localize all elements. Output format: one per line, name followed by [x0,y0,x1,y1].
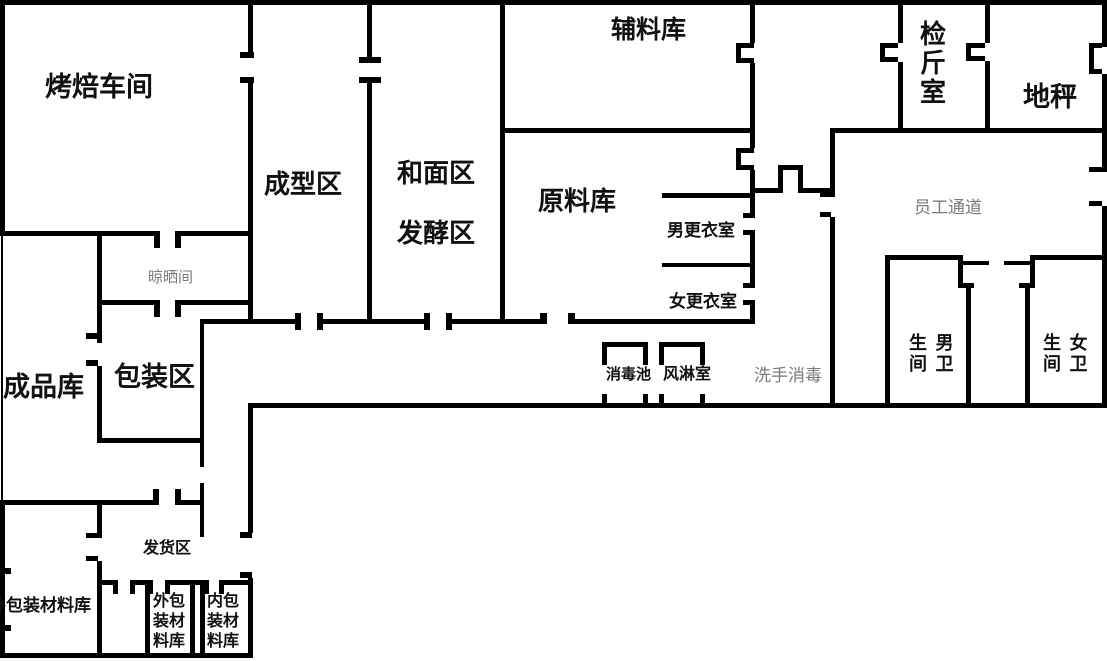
wall-segment [575,319,755,324]
wall-segment [803,188,832,193]
wall-segment [659,342,664,365]
wall-segment [1025,288,1030,407]
room-label-dough-mixing-area: 和面区 [397,159,475,188]
wall-segment [97,231,102,305]
wall-segment [1089,167,1102,172]
room-label-weighing-room: 检斤室 [918,20,948,107]
wall-segment [602,342,648,347]
wall-segment [500,128,755,133]
wall-segment [659,342,705,347]
room-label-auxiliary-material-store: 辅料库 [611,17,686,45]
wall-segment [452,319,540,324]
wall-segment [97,300,154,305]
wall-segment [500,0,505,324]
wall-segment [1,236,3,502]
floor-plan: 烤焙车间 成型区 和面区 发酵区 辅料库 原料库 检斤室 地秤 晾晒间 男更衣室… [0,0,1107,661]
wall-segment [966,43,971,61]
wall-segment [662,193,755,198]
wall-segment [830,128,1107,133]
wall-segment [700,342,705,365]
wall-segment [200,319,204,467]
wall-segment [97,438,204,443]
wall-segment [700,394,705,403]
wall-segment [743,283,755,288]
wall-segment [240,532,252,538]
room-label-shipping-area: 发货区 [143,540,191,558]
wall-segment [181,500,204,505]
wall-segment [154,300,160,317]
room-label-inner-packaging-material-store: 内包装材料库 [205,592,241,652]
wall-segment [1004,261,1030,265]
wall-segment [153,489,159,505]
wall-segment [750,63,755,148]
wall-segment [252,403,1107,408]
room-label-floor-scale: 地秤 [1023,82,1077,112]
wall-segment [659,394,664,403]
wall-segment [248,578,253,658]
wall-segment [181,231,253,236]
wall-segment [830,217,835,407]
wall-segment [359,57,381,63]
wall-segment [0,568,11,574]
wall-segment [602,394,607,403]
wall-segment [145,580,150,658]
womens-toilet-line2: 间 卫 [1043,354,1090,375]
wall-segment [190,583,195,658]
wall-segment [540,313,547,324]
wall-segment [0,502,5,658]
room-label-womens-changing-room: 女更衣室 [669,292,737,311]
room-label-fermentation-area: 发酵区 [397,219,475,248]
wall-segment [743,213,755,218]
wall-segment [885,255,890,407]
wall-segment [1089,201,1102,206]
wall-segment [568,313,575,324]
wall-segment [643,394,648,403]
wall-segment [0,0,1107,5]
room-label-baking-workshop: 烤焙车间 [45,72,153,102]
wall-segment [0,625,11,631]
wall-segment [248,403,253,533]
wall-segment [963,261,989,265]
wall-segment [295,313,301,330]
wall-segment [985,61,990,133]
wall-segment [880,43,885,62]
wall-segment [966,288,971,407]
wall-segment [1030,255,1107,260]
room-label-outer-packaging-material-store: 外包装材料库 [0,596,91,615]
room-label-womens-toilet: 生 女 间 卫 [1043,333,1090,375]
room-label-air-shower: 风淋室 [663,366,711,384]
womens-toilet-line1: 生 女 [1043,333,1090,354]
wall-segment [985,0,990,43]
wall-segment [86,533,98,538]
wall-segment [885,255,963,260]
room-label-drying-room: 晾晒间 [148,270,193,287]
wall-segment [367,0,372,57]
wall-segment [367,83,372,324]
wall-segment [1102,74,1107,172]
wall-segment [240,52,254,58]
wall-segment [200,319,295,324]
wall-segment [1102,0,1107,47]
wall-segment [0,0,5,236]
room-label-finished-goods-store: 成品库 [3,372,84,402]
wall-segment [0,653,253,658]
mens-toilet-line1: 生 男 [909,333,956,354]
wall-segment [1102,206,1107,408]
wall-segment [181,300,253,305]
room-label-mens-toilet: 生 男 间 卫 [909,333,956,375]
wall-segment [602,342,607,365]
wall-segment [778,165,803,170]
room-label-disinfection-pool: 消毒池 [606,367,651,384]
wall-segment [736,148,741,170]
wall-segment [154,231,160,248]
wall-segment [113,580,118,594]
wall-segment [97,366,102,443]
wall-segment [0,500,154,505]
wall-segment [753,188,780,193]
room-label-staff-corridor: 员工通道 [914,198,982,217]
wall-segment [643,342,648,365]
room-label-outer-packaging-material-store-small: 外包装材料库 [151,592,187,652]
wall-segment [750,0,755,43]
wall-segment [248,0,253,52]
wall-segment [86,333,98,339]
wall-segment [662,263,755,267]
room-label-raw-material-store: 原料库 [538,187,616,216]
wall-segment [750,235,755,283]
wall-segment [424,313,430,330]
wall-segment [830,128,835,197]
wall-segment [323,319,424,324]
wall-segment [736,43,741,63]
wall-segment [248,83,253,324]
wall-segment [97,561,102,658]
mens-toilet-line2: 间 卫 [909,354,956,375]
room-label-hand-wash-disinfection: 洗手消毒 [754,366,822,385]
room-label-mens-changing-room: 男更衣室 [667,221,735,240]
wall-segment [898,62,903,133]
wall-segment [1089,43,1094,74]
wall-segment [898,0,903,43]
wall-segment [200,483,204,537]
wall-segment [0,231,154,236]
wall-segment [224,580,253,585]
room-label-forming-area: 成型区 [264,170,342,199]
room-label-packaging-area: 包装区 [114,362,195,392]
